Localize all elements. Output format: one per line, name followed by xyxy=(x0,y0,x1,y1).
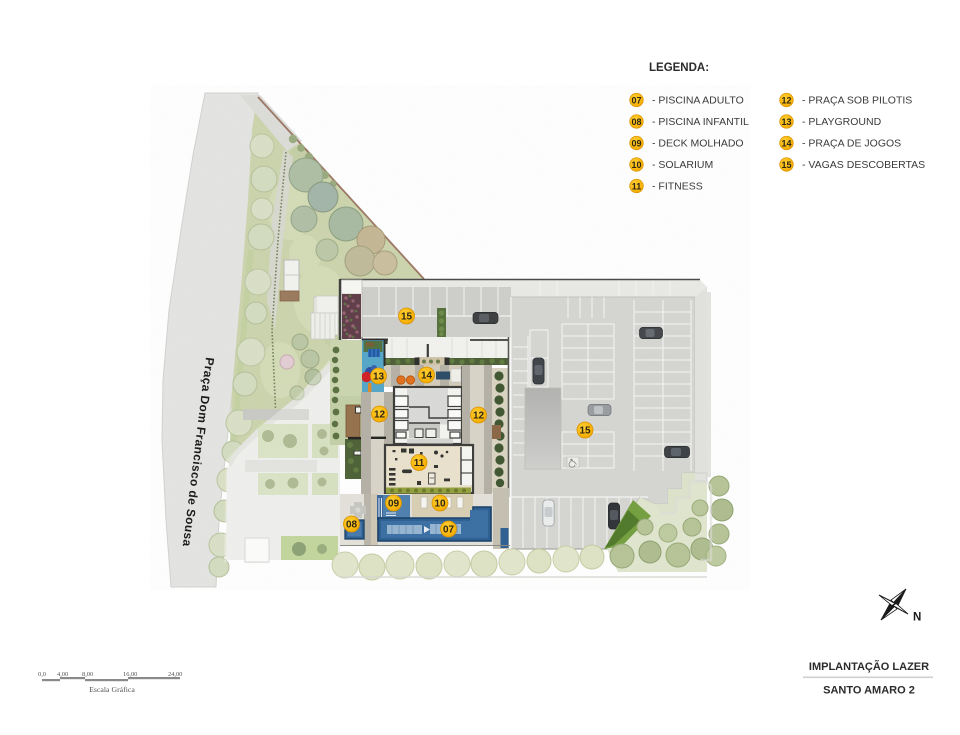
svg-text:09: 09 xyxy=(388,499,400,510)
svg-text:- SOLARIUM: - SOLARIUM xyxy=(652,159,713,171)
svg-text:07: 07 xyxy=(443,525,455,536)
svg-text:15: 15 xyxy=(401,312,413,323)
svg-text:12: 12 xyxy=(374,410,386,421)
svg-text:11: 11 xyxy=(632,181,642,191)
svg-text:N: N xyxy=(913,612,921,624)
svg-text:14: 14 xyxy=(421,371,433,382)
svg-text:4,00: 4,00 xyxy=(57,671,68,678)
svg-text:12: 12 xyxy=(473,411,485,422)
svg-text:13: 13 xyxy=(373,372,385,383)
svg-text:08: 08 xyxy=(631,117,641,127)
svg-text:08: 08 xyxy=(346,520,358,531)
svg-text:24,00: 24,00 xyxy=(168,671,182,678)
svg-text:LEGENDA:: LEGENDA: xyxy=(649,62,709,74)
svg-text:15: 15 xyxy=(579,426,591,437)
svg-text:12: 12 xyxy=(781,95,791,105)
svg-text:SANTO AMARO 2: SANTO AMARO 2 xyxy=(823,685,915,697)
svg-text:10: 10 xyxy=(434,499,446,510)
svg-text:- DECK MOLHADO: - DECK MOLHADO xyxy=(652,138,744,150)
svg-text:09: 09 xyxy=(631,138,641,148)
svg-text:0,0: 0,0 xyxy=(38,671,46,678)
svg-text:- PRAÇA DE JOGOS: - PRAÇA DE JOGOS xyxy=(802,138,901,150)
svg-text:- PLAYGROUND: - PLAYGROUND xyxy=(802,116,882,128)
svg-text:IMPLANTAÇÃO LAZER: IMPLANTAÇÃO LAZER xyxy=(809,660,929,673)
svg-text:- PISCINA INFANTIL: - PISCINA INFANTIL xyxy=(652,116,749,128)
svg-text:13: 13 xyxy=(781,117,791,127)
svg-text:14: 14 xyxy=(781,138,791,148)
svg-text:- FITNESS: - FITNESS xyxy=(652,181,703,193)
svg-text:15: 15 xyxy=(781,160,791,170)
svg-text:11: 11 xyxy=(414,458,425,469)
svg-text:- VAGAS DESCOBERTAS: - VAGAS DESCOBERTAS xyxy=(802,159,925,171)
svg-text:16,00: 16,00 xyxy=(123,671,137,678)
svg-text:- PISCINA ADULTO: - PISCINA ADULTO xyxy=(652,95,744,107)
svg-text:Escala Gráfica: Escala Gráfica xyxy=(89,685,135,694)
svg-text:07: 07 xyxy=(631,95,641,105)
svg-text:10: 10 xyxy=(631,160,641,170)
svg-text:8,00: 8,00 xyxy=(82,671,93,678)
svg-text:- PRAÇA SOB PILOTIS: - PRAÇA SOB PILOTIS xyxy=(802,95,912,107)
